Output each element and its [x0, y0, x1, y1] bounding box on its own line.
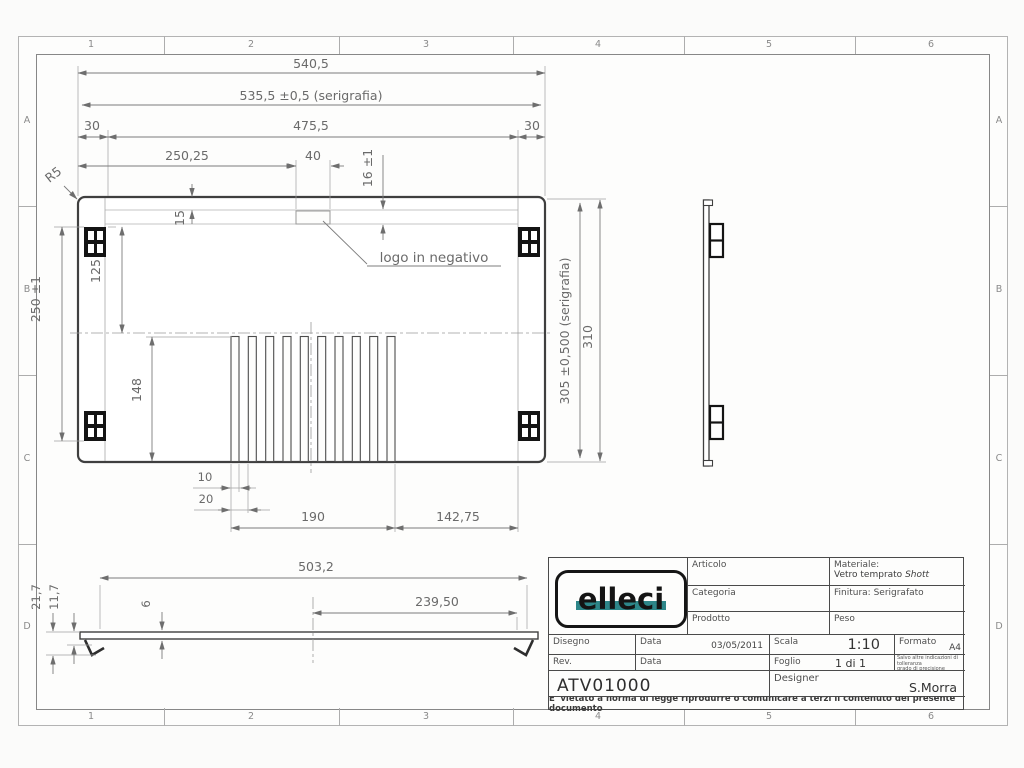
drawing-code-cell: ATV01000 [549, 670, 769, 696]
grid-row-c-left: C [16, 452, 38, 466]
dim-corner-radius: R5 [42, 163, 64, 185]
grid-col-6-top: 6 [920, 38, 942, 52]
mounting-pad-top-left [84, 227, 106, 257]
tolerance-note-cell: Salvo altre indicazioni di tolleranza gr… [894, 654, 965, 670]
dim-serigraphy-height: 305 ±0,500 (serigrafia) [557, 258, 572, 405]
scala-cell: Scala 1:10 [769, 634, 894, 654]
materiale-cell: Materiale: Vetro temprato Shott [829, 558, 965, 585]
mounting-pad-bottom-left [84, 411, 106, 441]
grid-col-3-top: 3 [415, 38, 437, 52]
grid-row-a-right: A [988, 114, 1010, 128]
grid-tick [339, 708, 340, 726]
logo-cell: elleci [549, 558, 687, 634]
dim-margin-left: 30 [84, 118, 100, 133]
dim-slot-width: 10 [198, 470, 213, 484]
grid-col-4-bottom: 4 [587, 710, 609, 724]
materiale-value: Vetro temprato [834, 570, 902, 580]
title-block: elleci Articolo Materiale: Vetro temprat… [548, 557, 964, 710]
peso-cell: Peso [829, 611, 965, 634]
prodotto-cell: Prodotto [687, 611, 829, 634]
drawing-code: ATV01000 [553, 673, 765, 696]
grid-row-d-right: D [988, 620, 1010, 634]
dim-slot-field: 190 [301, 509, 325, 524]
grid-col-6-bottom: 6 [920, 710, 942, 724]
foglio-value: 1 di 1 [835, 657, 866, 670]
foglio-label: Foglio [774, 657, 890, 667]
side-pad-top [710, 224, 723, 257]
grid-col-2-bottom: 2 [240, 710, 262, 724]
grid-col-4-top: 4 [587, 38, 609, 52]
dim-overall-height: 310 [580, 325, 595, 349]
grid-col-5-bottom: 5 [758, 710, 780, 724]
dim-section-length: 503,2 [298, 559, 334, 574]
formato-value: A4 [949, 643, 961, 653]
finitura-label: Finitura: Serigrafato [834, 588, 961, 598]
mounting-pad-top-right [518, 227, 540, 257]
dim-band-top: 15 [172, 210, 187, 226]
dim-section-h2: 11,7 [47, 584, 61, 610]
dim-slot-pitch: 20 [199, 492, 214, 506]
grid-col-5-top: 5 [758, 38, 780, 52]
disegno-label: Disegno [553, 637, 631, 647]
designer-cell: Designer S.Morra [769, 670, 965, 696]
section-view: 503,2 239,50 21,7 11,7 6 [29, 559, 538, 674]
grid-tick [164, 36, 165, 54]
dimensions-slots: 10 20 190 142,75 [193, 464, 518, 532]
designer-value: S.Morra [909, 680, 957, 695]
side-view [704, 200, 724, 466]
disclaimer-bar: E' vietato a norma di legge riprodurre o… [549, 696, 965, 711]
grid-tick [684, 36, 685, 54]
peso-label: Peso [834, 614, 961, 624]
left-foot [85, 640, 104, 655]
grid-tick [855, 36, 856, 54]
company-logo: elleci [555, 570, 687, 628]
dim-section-h1: 21,7 [29, 584, 43, 610]
rev-cell: Rev. [549, 654, 635, 670]
grid-tick [164, 708, 165, 726]
disegno-cell: Disegno [549, 634, 635, 654]
grid-row-a-left: A [16, 114, 38, 128]
materiale-label: Materiale: [834, 560, 961, 570]
grid-tick [18, 375, 36, 376]
categoria-cell: Categoria [687, 585, 829, 611]
foglio-cell: Foglio 1 di 1 [769, 654, 894, 670]
mounting-pad-bottom-right [518, 411, 540, 441]
grid-col-1-top: 1 [80, 38, 102, 52]
grid-tick [513, 708, 514, 726]
materiale-value-brand: Shott [905, 570, 929, 580]
articolo-cell: Articolo [687, 558, 829, 585]
disclaimer-text: E' vietato a norma di legge riprodurre o… [549, 696, 965, 711]
grid-tick [990, 206, 1008, 207]
grid-col-3-bottom: 3 [415, 710, 437, 724]
dim-serigraphy-width: 535,5 ±0,5 (serigrafia) [240, 88, 383, 103]
grid-tick [339, 36, 340, 54]
finitura-cell: Finitura: Serigrafato [829, 585, 965, 611]
prodotto-label: Prodotto [692, 614, 825, 624]
logo-note-label: logo in negativo [380, 250, 489, 266]
dim-logo-width: 40 [305, 148, 321, 163]
dim-slot-height: 148 [129, 378, 144, 402]
data-cell: Data 03/05/2011 [635, 634, 769, 654]
grid-col-1-bottom: 1 [80, 710, 102, 724]
dim-inner-width: 475,5 [293, 118, 329, 133]
logo-text: elleci [578, 582, 664, 616]
front-view [70, 197, 553, 473]
right-foot [514, 640, 533, 655]
scala-value: 1:10 [847, 637, 880, 653]
dim-logo-offset: 250,25 [165, 148, 209, 163]
grid-tick [990, 544, 1008, 545]
categoria-label: Categoria [692, 588, 825, 598]
dimensions-right: 305 ±0,500 (serigrafia) 310 [547, 199, 606, 462]
data2-label: Data [640, 657, 765, 667]
grid-tick [18, 544, 36, 545]
dim-band-height: 16 ±1 [360, 149, 375, 187]
dim-slot-to-edge: 142,75 [436, 509, 480, 524]
dim-section-half: 239,50 [415, 594, 459, 609]
grid-row-d-left: D [16, 620, 38, 634]
rev-label: Rev. [553, 657, 631, 667]
dim-overall-width: 540,5 [293, 56, 329, 71]
grid-col-2-top: 2 [240, 38, 262, 52]
dim-pad-half: 125 [88, 259, 103, 283]
grid-tick [990, 375, 1008, 376]
data-value: 03/05/2011 [711, 641, 763, 651]
grid-row-b-right: B [988, 283, 1010, 297]
articolo-label: Articolo [692, 560, 825, 570]
logo-window [296, 211, 330, 224]
dim-margin-right: 30 [524, 118, 540, 133]
dim-pad-span: 250 ±1 [28, 276, 43, 322]
data2-cell: Data [635, 654, 769, 670]
dim-section-thickness: 6 [139, 600, 153, 607]
grid-tick [513, 36, 514, 54]
formato-cell: Formato A4 [894, 634, 965, 654]
grid-tick [18, 206, 36, 207]
grid-row-c-right: C [988, 452, 1010, 466]
side-pad-bottom [710, 406, 723, 439]
